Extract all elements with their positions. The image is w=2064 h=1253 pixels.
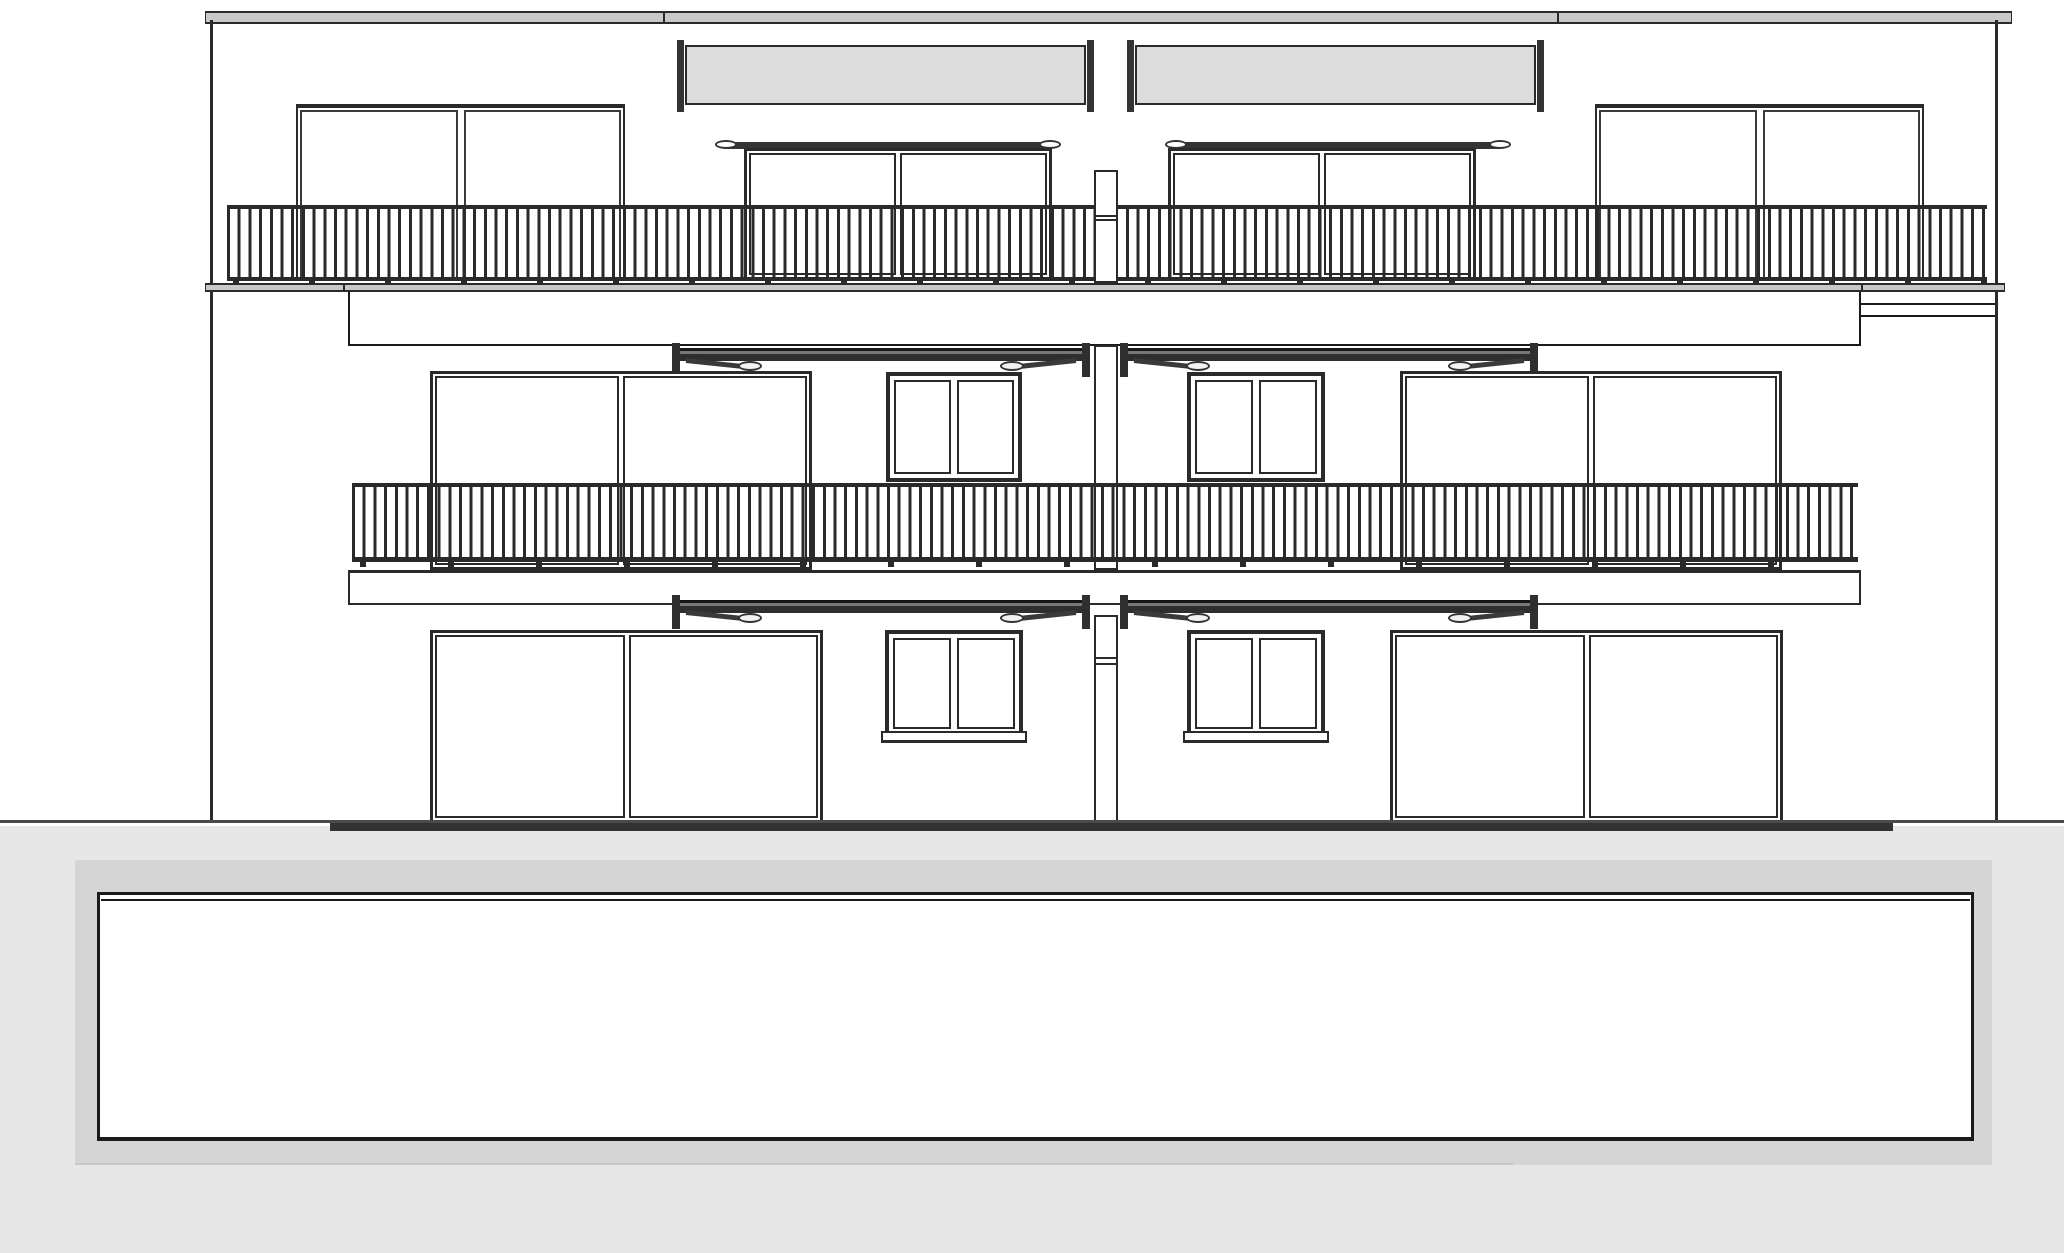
roof-railing-feet-foot [1145, 277, 1151, 285]
roof-railing-feet-foot [1677, 277, 1683, 285]
roof-joint-left [663, 11, 665, 24]
middle-railing-feet-foot [800, 558, 806, 567]
roof-railing-feet-foot [1829, 277, 1835, 285]
roof-railing-feet-foot [1905, 277, 1911, 285]
middle-awning-right-arm-elbow-left [1186, 361, 1210, 371]
ground-sliding-door-right-pane-left [1395, 635, 1585, 818]
middle-awning-right-arm-elbow-right [1448, 361, 1472, 371]
basement-garage-box [97, 892, 1974, 1141]
roof-railing-feet-foot [993, 277, 999, 285]
roof-railing-feet-foot [461, 277, 467, 285]
roof-awning-cassette-right-bracket-left [1127, 40, 1134, 112]
middle-awning-left-bracket-right [1082, 343, 1090, 377]
middle-awning-left-arm-elbow-right [1000, 361, 1024, 371]
middle-railing-feet-foot [1240, 558, 1246, 567]
roof-awning-cassette-left-cassette [685, 45, 1086, 105]
ground-awning-left-bar [678, 600, 1084, 613]
ground-awning-right-arm-elbow-right [1448, 613, 1472, 623]
middle-awning-right-bar [1126, 348, 1532, 361]
ground-awning-left [672, 595, 1090, 629]
middle-railing-feet-foot [360, 558, 366, 567]
roof-awning-cassette-right-cassette [1135, 45, 1536, 105]
chimney-ground [1094, 615, 1118, 823]
middle-balcony-slab [348, 570, 1861, 605]
roof-awning-cassette-left-bracket-right [1087, 40, 1094, 112]
roof-railing-feet-foot [1601, 277, 1607, 285]
upper-fascia-band [348, 292, 1861, 346]
middle-railing-feet-foot [712, 558, 718, 567]
roof-railing-feet-foot [841, 277, 847, 285]
ground-sliding-door-left-pane-left [435, 635, 625, 818]
ground-window-left-casement-right [957, 638, 1015, 729]
ground-awning-right-bracket-right [1530, 595, 1538, 629]
ground-awning-left-bracket-left [672, 595, 680, 629]
upper-fascia-right-line [1861, 303, 1995, 305]
roof-railing-feet-foot [1221, 277, 1227, 285]
ground-awning-right-arm-elbow-left [1186, 613, 1210, 623]
middle-awning-left-bar [678, 348, 1084, 361]
ground-sliding-door-right [1390, 630, 1783, 823]
middle-window-right-casement-left [1195, 380, 1253, 474]
middle-railing-feet-foot [1504, 558, 1510, 567]
right-wall [1995, 20, 1998, 823]
ground-window-left-sill [881, 731, 1027, 743]
roof-railing-feet-foot [233, 277, 239, 285]
basement-step-line [75, 1163, 1513, 1165]
elevation-drawing [0, 0, 2064, 1253]
middle-railing-feet-foot [1680, 558, 1686, 567]
roof-railing-feet-foot [689, 277, 695, 285]
roof-railing-feet-foot [385, 277, 391, 285]
ground-sliding-door-right-pane-right [1589, 635, 1779, 818]
chimney-ground-joint [1096, 663, 1116, 665]
ground-awning-left-arm-elbow-right [1000, 613, 1024, 623]
chimney-top-joint [1096, 219, 1116, 221]
middle-window-right [1187, 372, 1325, 482]
basement-box-top-line [101, 899, 1970, 901]
roof-railing-feet-foot [1373, 277, 1379, 285]
ground-window-right-casement-left [1195, 638, 1253, 729]
middle-railing-feet-foot [888, 558, 894, 567]
ground-awning-left-arm-elbow-left [738, 613, 762, 623]
ground-awning-left-bracket-right [1082, 595, 1090, 629]
middle-awning-right-bracket-left [1120, 343, 1128, 377]
ground-window-left [885, 630, 1023, 737]
middle-railing-feet-foot [1768, 558, 1774, 567]
middle-railing-feet-foot [1328, 558, 1334, 567]
middle-railing-feet-foot [536, 558, 542, 567]
roof-railing-feet-foot [1297, 277, 1303, 285]
ground-awning-right-bracket-left [1120, 595, 1128, 629]
middle-window-left [886, 372, 1022, 482]
middle-window-left-casement-left [894, 380, 951, 474]
roof-awning-cassette-right-hook-right [1489, 140, 1511, 149]
chimney-ground-joint [1096, 657, 1116, 659]
roof-railing-feet-foot [309, 277, 315, 285]
middle-awning-left-arm-elbow-left [738, 361, 762, 371]
roof-railing-feet-foot [613, 277, 619, 285]
middle-railing-feet-foot [1592, 558, 1598, 567]
roof-awning-cassette-left-bracket-left [677, 40, 684, 112]
middle-window-right-casement-right [1259, 380, 1317, 474]
roof-slab [205, 11, 2012, 24]
chimney-top-joint [1096, 215, 1116, 217]
ground-sliding-door-left-pane-right [629, 635, 819, 818]
middle-railing-feet-foot [624, 558, 630, 567]
left-wall [210, 20, 213, 823]
roof-railing-feet-foot [1449, 277, 1455, 285]
ground-window-right [1187, 630, 1325, 737]
roof-awning-cassette-right [1127, 40, 1544, 152]
roof-railing-feet-foot [917, 277, 923, 285]
middle-railing-feet-foot [1416, 558, 1422, 567]
middle-railing-feet [360, 558, 1850, 567]
roof-railing-feet-foot [1981, 277, 1987, 285]
middle-railing-feet-foot [448, 558, 454, 567]
ground-line-footprint [330, 823, 1893, 831]
roof-railing-feet-foot [537, 277, 543, 285]
middle-window-left-casement-right [957, 380, 1014, 474]
roof-awning-cassette-right-bracket-right [1537, 40, 1544, 112]
roof-railing-feet-foot [1525, 277, 1531, 285]
ground-window-right-casement-right [1259, 638, 1317, 729]
roof-railing-feet-foot [1069, 277, 1075, 285]
ground-sliding-door-left [430, 630, 823, 823]
roof-joint-right [1557, 11, 1559, 24]
roof-awning-cassette-left-hook-left [715, 140, 737, 149]
middle-railing-feet-foot [1152, 558, 1158, 567]
roof-railing-feet-foot [765, 277, 771, 285]
ground-window-left-casement-left [893, 638, 951, 729]
middle-balcony-railing [352, 483, 1858, 562]
ground-awning-right-bar [1126, 600, 1532, 613]
ground-awning-right [1120, 595, 1538, 629]
roof-railing-feet-foot [1753, 277, 1759, 285]
middle-railing-feet-foot [976, 558, 982, 567]
middle-railing-feet-foot [1064, 558, 1070, 567]
ground-window-right-sill [1183, 731, 1329, 743]
chimney-top [1094, 170, 1118, 283]
roof-awning-cassette-left [677, 40, 1094, 152]
